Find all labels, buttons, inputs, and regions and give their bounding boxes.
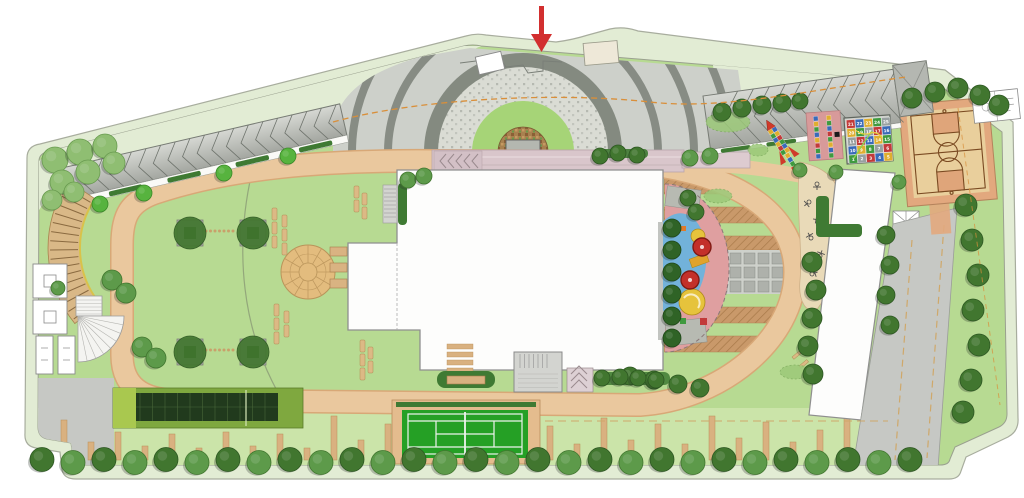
stepping-stone [368,361,373,373]
vine-trellis [113,388,303,428]
svg-text:8: 8 [869,147,872,152]
stepping-stone [272,236,277,248]
svg-text:24: 24 [874,120,880,125]
svg-text:2: 2 [860,156,863,161]
porch-columns [330,247,347,288]
svg-text:7: 7 [877,146,880,151]
tree-planter [237,336,269,368]
hopscotch-square [816,154,821,159]
stepping-stone [274,332,279,344]
stepping-stone [362,193,367,205]
tree [28,448,54,473]
svg-text:5: 5 [887,154,890,159]
tree-planter [174,217,206,249]
hopscotch-square [829,153,834,158]
south-ramp [567,368,593,392]
stepping-stone [284,325,289,337]
stepping-stone [272,222,277,234]
shrub-patch [704,189,732,203]
play-slide-mound [679,289,705,315]
stepping-stone [282,229,287,241]
hopscotch-square [827,126,832,131]
stepping-stone [274,318,279,330]
hopscotch-square [814,132,819,137]
svg-text:3: 3 [869,155,872,160]
svg-text:15: 15 [884,137,890,142]
stepping-stone [354,186,359,198]
svg-text:25: 25 [883,119,889,124]
stepping-stone [368,347,373,359]
bench [447,376,485,384]
hopscotch-square [814,122,819,127]
hopscotch-square [828,148,833,153]
hopscotch-square [816,149,821,154]
stepping-stone [360,340,365,352]
parking-stripe [304,448,310,460]
gatehouse-beige [583,41,619,66]
stepping-stone [360,368,365,380]
spiral-plaza [281,245,335,299]
tree-row-bottom [28,448,922,476]
svg-text:4: 4 [878,155,881,160]
parking-stripe [331,416,337,460]
stepping-stone [272,208,277,220]
snakes-ladders-board: 2122232425201918171611121314151098761234… [844,115,893,164]
terrace-ramp [434,151,482,172]
hopscotch-square [814,127,819,132]
site-plan-drawing: 2122232425201918171611121314151098761234… [0,0,1024,498]
svg-text:16: 16 [883,128,889,133]
stepping-stone [360,354,365,366]
svg-text:20: 20 [848,130,854,135]
hopscotch-square [828,142,833,147]
svg-text:21: 21 [848,122,854,127]
svg-text:23: 23 [865,120,871,125]
tree-planter [174,336,206,368]
stepping-stone [274,304,279,316]
svg-text:22: 22 [856,121,862,126]
stepping-stone [282,215,287,227]
hopscotch-square [815,138,820,143]
hopscotch-square [815,143,820,148]
tennis-hedge [396,402,536,407]
stepping-stone [282,243,287,255]
tree-planter [237,217,269,249]
shrub-patch [748,144,768,156]
hopscotch-square [827,131,832,136]
stepping-stone [354,200,359,212]
svg-text:6: 6 [886,145,889,150]
parking-stripe [115,432,121,460]
stepping-stone [284,311,289,323]
hopscotch-square [813,116,818,121]
stepping-stone [362,207,367,219]
svg-text:10: 10 [850,148,856,153]
hopscotch-square [826,115,831,120]
svg-text:11: 11 [849,139,855,144]
svg-text:14: 14 [875,137,881,142]
hopscotch-square [827,121,832,126]
hopscotch-mat [806,111,843,161]
parking-stripe [736,438,742,460]
site-plan-stage: 2122232425201918171611121314151098761234… [0,0,1024,498]
hopscotch-square [828,137,833,142]
